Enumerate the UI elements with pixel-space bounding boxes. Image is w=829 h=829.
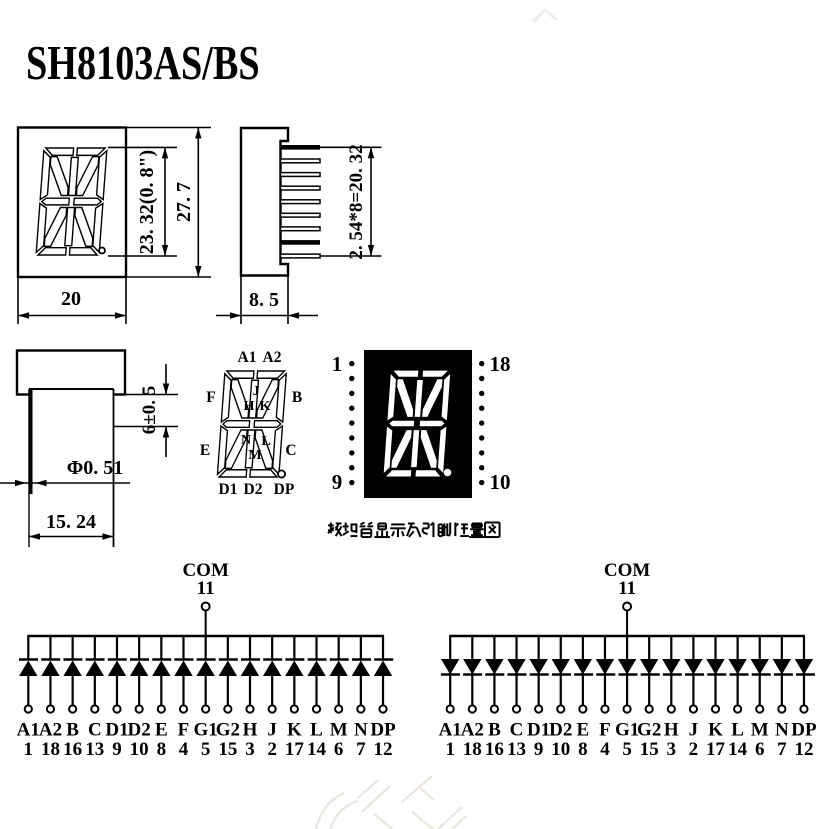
svg-text:6: 6 (755, 739, 765, 760)
svg-text:DP: DP (274, 481, 295, 498)
svg-text:18: 18 (41, 739, 60, 760)
svg-text:DP: DP (791, 720, 817, 741)
svg-text:2. 54*8=20. 32: 2. 54*8=20. 32 (346, 144, 367, 259)
svg-text:13: 13 (507, 739, 526, 760)
svg-text:B: B (66, 720, 79, 741)
svg-text:Φ0. 51: Φ0. 51 (67, 457, 124, 479)
svg-text:L: L (310, 720, 323, 741)
svg-text:G2: G2 (637, 720, 661, 741)
svg-text:16: 16 (63, 739, 82, 760)
svg-text:C: C (510, 720, 524, 741)
svg-text:8: 8 (578, 739, 588, 760)
svg-text:4: 4 (179, 739, 189, 760)
svg-text:H: H (244, 399, 255, 414)
svg-text:9: 9 (332, 470, 343, 494)
svg-text:4: 4 (600, 739, 610, 760)
svg-text:17: 17 (285, 739, 305, 760)
svg-text:K: K (260, 399, 271, 414)
svg-text:SH8103AS/BS: SH8103AS/BS (26, 36, 260, 91)
svg-text:12: 12 (794, 739, 813, 760)
svg-text:D1: D1 (105, 720, 128, 741)
svg-text:10: 10 (130, 739, 149, 760)
svg-text:13: 13 (85, 739, 104, 760)
svg-text:A1: A1 (238, 349, 257, 366)
svg-text:D1: D1 (527, 720, 550, 741)
svg-text:12: 12 (374, 739, 393, 760)
svg-text:A2: A2 (461, 720, 484, 741)
svg-text:6±0. 5: 6±0. 5 (139, 386, 160, 434)
svg-text:N: N (354, 720, 368, 741)
svg-text:5: 5 (201, 739, 211, 760)
svg-text:7: 7 (777, 739, 787, 760)
svg-text:6: 6 (334, 739, 344, 760)
svg-text:2: 2 (689, 739, 699, 760)
svg-text:20: 20 (61, 288, 81, 310)
svg-text:15: 15 (640, 739, 659, 760)
svg-text:D2: D2 (128, 720, 151, 741)
svg-text:18: 18 (490, 352, 511, 376)
svg-text:11: 11 (197, 578, 215, 599)
svg-text:17: 17 (706, 739, 726, 760)
svg-text:H: H (243, 720, 258, 741)
svg-text:L: L (731, 720, 744, 741)
svg-text:M: M (751, 720, 769, 741)
svg-text:D1: D1 (219, 481, 238, 498)
svg-text:G2: G2 (216, 720, 240, 741)
svg-text:1: 1 (445, 739, 455, 760)
svg-text:J: J (253, 384, 260, 399)
svg-text:K: K (708, 720, 723, 741)
svg-text:G1: G1 (194, 720, 218, 741)
svg-text:F: F (206, 389, 215, 406)
svg-text:A2: A2 (39, 720, 62, 741)
svg-text:L: L (261, 434, 270, 449)
svg-text:23. 32(0. 8"): 23. 32(0. 8") (136, 150, 158, 254)
svg-text:5: 5 (622, 739, 632, 760)
svg-text:27. 7: 27. 7 (173, 182, 195, 222)
svg-text:N: N (241, 433, 251, 448)
svg-text:A2: A2 (263, 349, 282, 366)
svg-text:M: M (248, 448, 261, 463)
svg-text:8. 5: 8. 5 (249, 289, 279, 311)
svg-text:9: 9 (112, 739, 122, 760)
svg-text:B: B (488, 720, 501, 741)
svg-text:C: C (88, 720, 102, 741)
svg-text:1: 1 (332, 352, 343, 376)
svg-text:7: 7 (356, 739, 366, 760)
svg-text:8: 8 (157, 739, 167, 760)
svg-text:E: E (577, 720, 590, 741)
svg-text:14: 14 (728, 739, 748, 760)
svg-text:D2: D2 (244, 481, 263, 498)
svg-text:9: 9 (534, 739, 544, 760)
svg-text:H: H (664, 720, 679, 741)
svg-text:3: 3 (245, 739, 255, 760)
svg-text:N: N (775, 720, 789, 741)
svg-text:K: K (287, 720, 302, 741)
svg-text:A1: A1 (439, 720, 462, 741)
svg-text:G1: G1 (615, 720, 639, 741)
svg-text:11: 11 (618, 578, 636, 599)
svg-text:16: 16 (485, 739, 504, 760)
svg-text:F: F (178, 720, 190, 741)
svg-text:15: 15 (218, 739, 237, 760)
svg-text:18: 18 (463, 739, 482, 760)
svg-text:15. 24: 15. 24 (46, 511, 96, 533)
svg-text:DP: DP (370, 720, 396, 741)
svg-text:1: 1 (24, 739, 34, 760)
svg-text:D2: D2 (549, 720, 572, 741)
svg-text:E: E (155, 720, 168, 741)
svg-text:A1: A1 (17, 720, 40, 741)
svg-text:10: 10 (490, 470, 511, 494)
svg-text:J: J (689, 720, 699, 741)
svg-text:B: B (292, 389, 302, 406)
svg-text:2: 2 (267, 739, 277, 760)
svg-text:M: M (330, 720, 348, 741)
svg-text:E: E (200, 442, 210, 459)
svg-text:F: F (599, 720, 611, 741)
svg-text:C: C (285, 442, 296, 459)
svg-text:3: 3 (667, 739, 677, 760)
svg-text:J: J (267, 720, 277, 741)
svg-text:10: 10 (551, 739, 570, 760)
svg-text:14: 14 (307, 739, 327, 760)
